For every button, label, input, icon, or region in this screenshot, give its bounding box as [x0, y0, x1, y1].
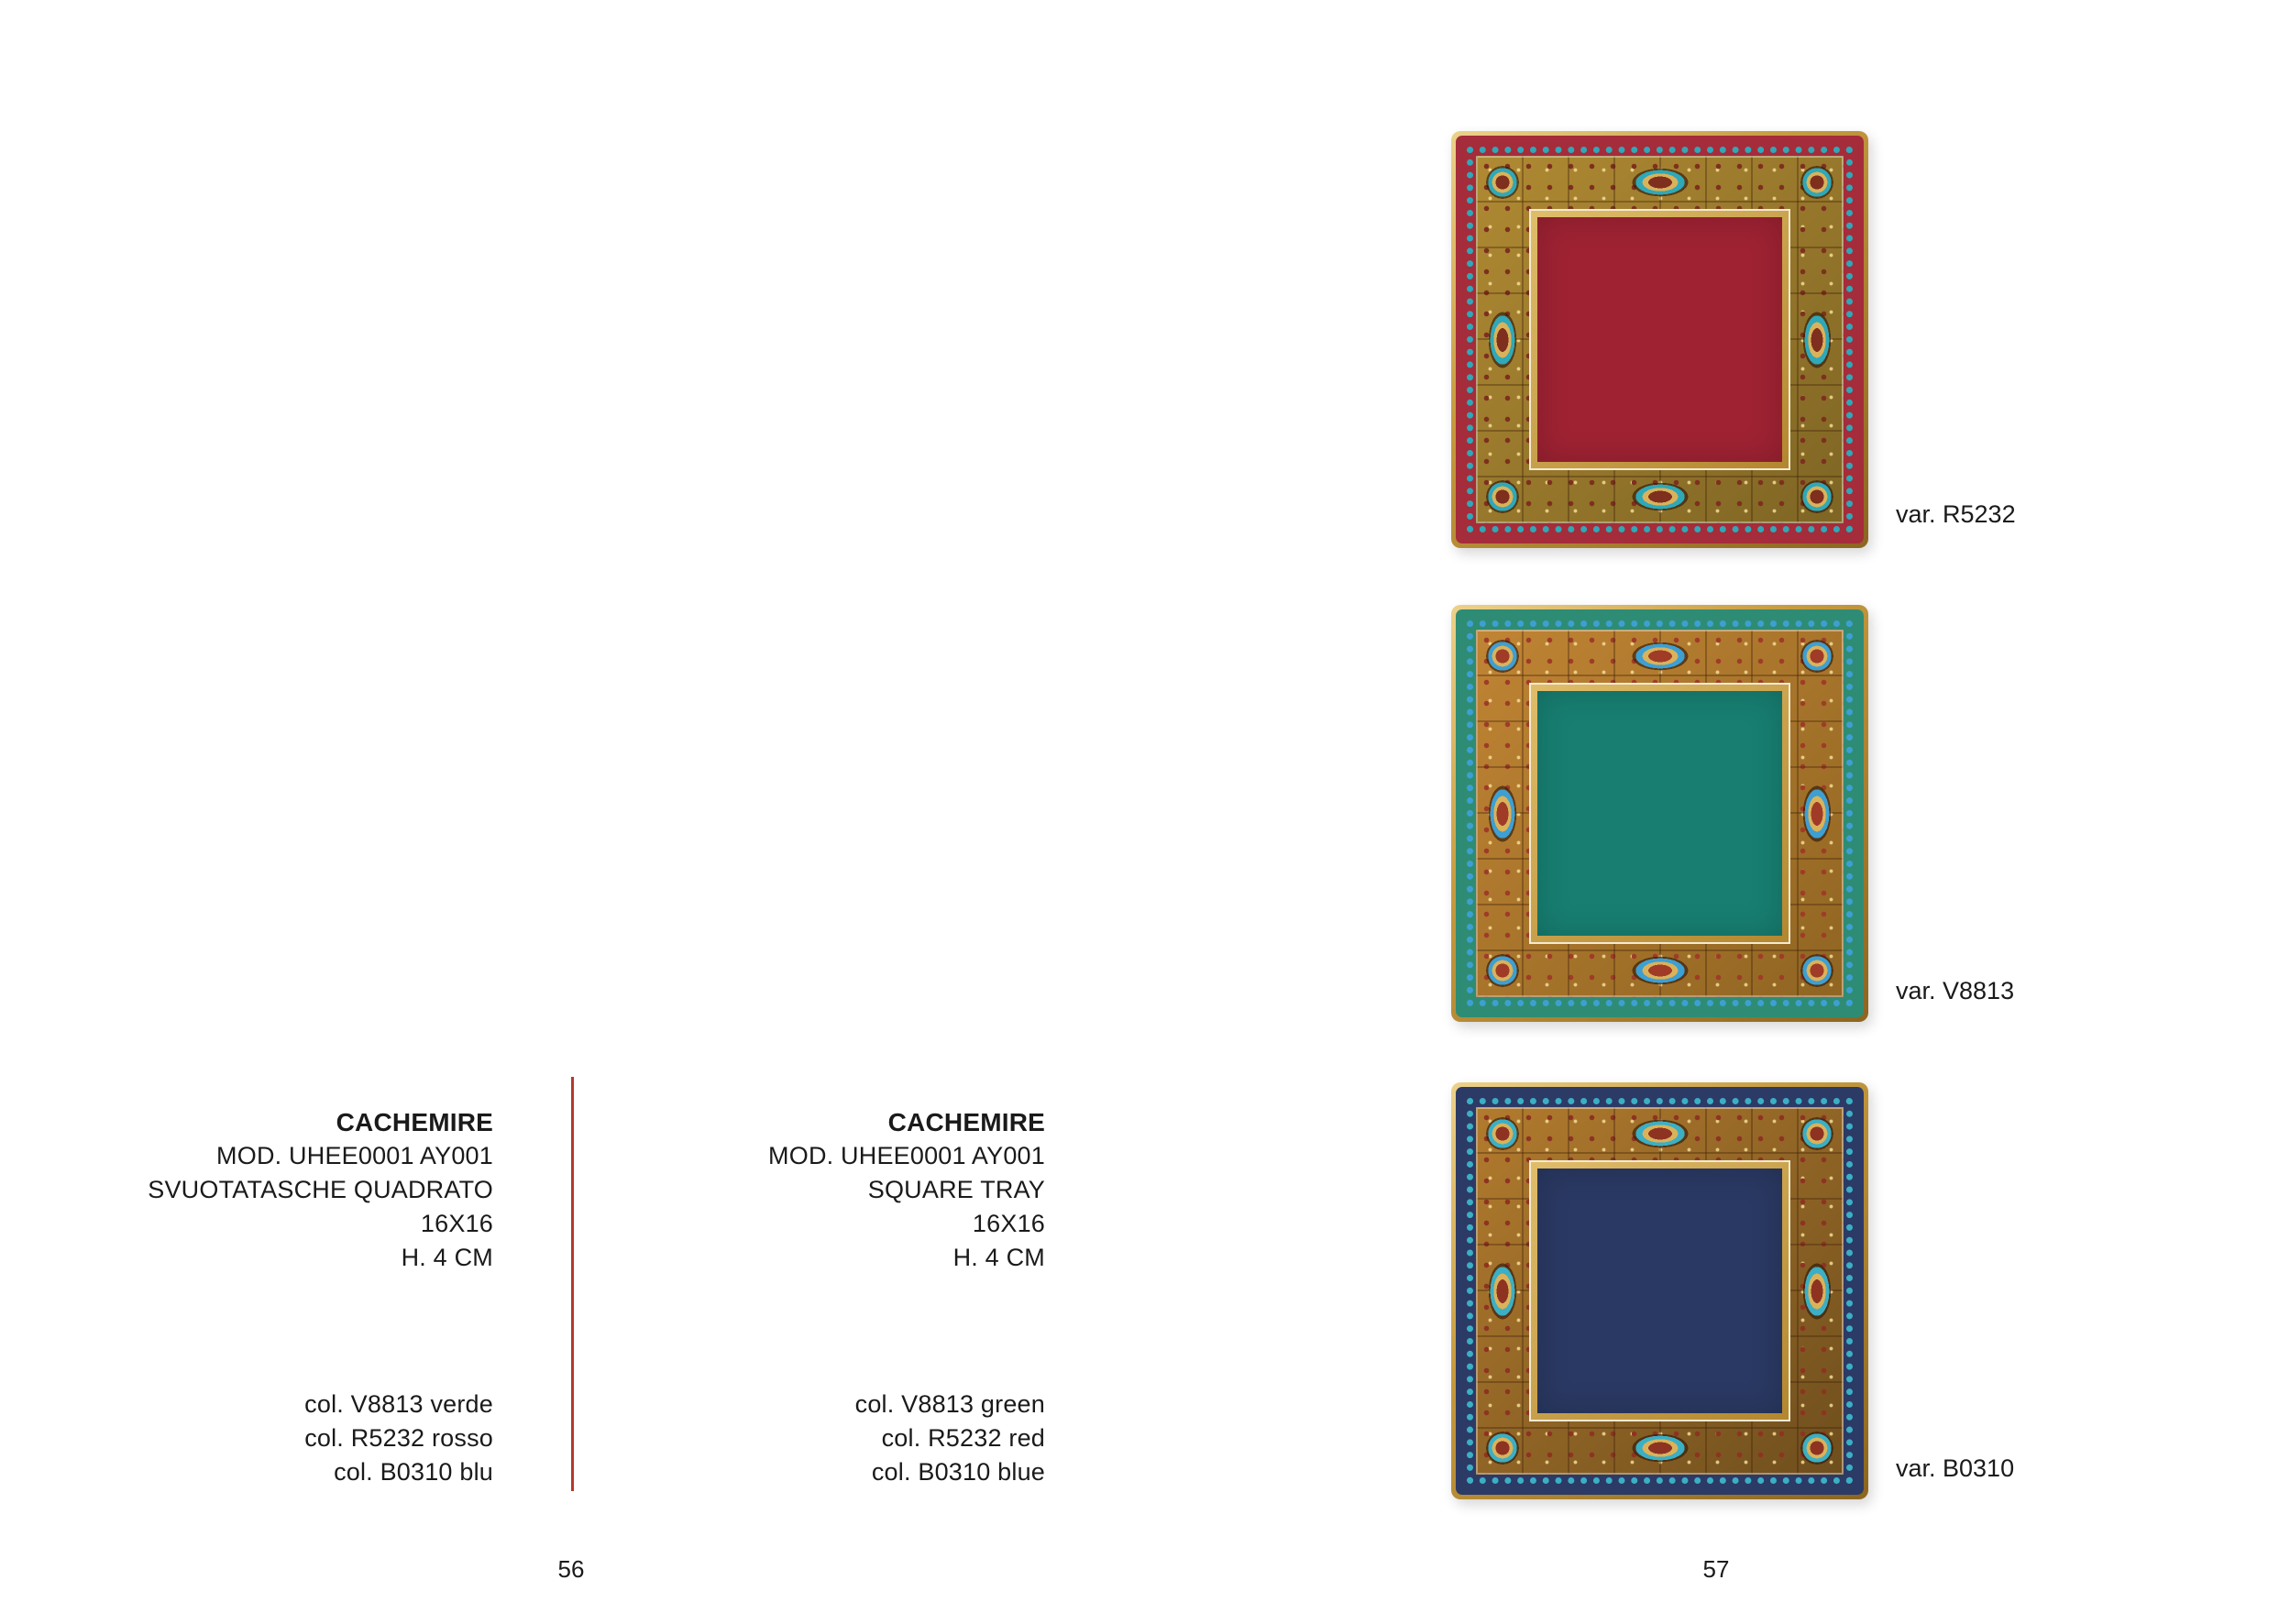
product-size-italian: 16X16: [128, 1207, 493, 1241]
product-model-english: MOD. UHEE0001 AY001: [680, 1139, 1045, 1173]
paisley-medallion: [1796, 298, 1838, 382]
product-spec-english: CACHEMIRE MOD. UHEE0001 AY001 SQUARE TRA…: [680, 1105, 1045, 1275]
color-option-rosso: col. R5232 rosso: [128, 1421, 493, 1455]
tray-photo-red: [1451, 131, 1868, 548]
tray-gold-frame: [1529, 209, 1790, 470]
tray-outer-band: [1456, 1087, 1864, 1495]
color-option-blu: col. B0310 blu: [128, 1455, 493, 1489]
paisley-medallion: [1792, 631, 1842, 681]
paisley-medallion: [1478, 946, 1527, 995]
product-height-italian: H. 4 CM: [128, 1241, 493, 1275]
tray-photo-blue: [1451, 1082, 1868, 1499]
product-model-italian: MOD. UHEE0001 AY001: [128, 1139, 493, 1173]
paisley-medallion: [1618, 161, 1702, 203]
tray-center-field: [1537, 217, 1782, 462]
paisley-medallion: [1792, 1423, 1842, 1473]
paisley-medallion: [1618, 635, 1702, 677]
product-size-english: 16X16: [680, 1207, 1045, 1241]
catalog-page: CACHEMIRE MOD. UHEE0001 AY001 SVUOTATASC…: [0, 0, 2290, 1624]
tray-gold-frame: [1529, 683, 1790, 944]
paisley-medallion: [1478, 472, 1527, 521]
product-description-italian: SVUOTATASCHE QUADRATO: [128, 1173, 493, 1207]
paisley-medallion: [1618, 949, 1702, 992]
tray-dotted-trim: [1467, 147, 1853, 532]
paisley-medallion: [1796, 1249, 1838, 1333]
tray-photo-green: [1451, 605, 1868, 1022]
tray-paisley-border: [1476, 156, 1844, 523]
product-colors-english: col. V8813 green col. R5232 red col. B03…: [680, 1388, 1045, 1489]
tray-outer-band: [1456, 136, 1864, 543]
tray-outer-band: [1456, 609, 1864, 1017]
paisley-medallion: [1481, 298, 1524, 382]
tray-paisley-border: [1476, 630, 1844, 997]
variant-label-r5232: var. R5232: [1896, 500, 2152, 528]
product-spec-italian: CACHEMIRE MOD. UHEE0001 AY001 SVUOTATASC…: [128, 1105, 493, 1275]
paisley-medallion: [1792, 1109, 1842, 1158]
paisley-medallion: [1478, 631, 1527, 681]
page-number-right: 57: [1670, 1555, 1762, 1583]
product-height-english: H. 4 CM: [680, 1241, 1045, 1275]
paisley-medallion: [1792, 158, 1842, 207]
column-divider-line: [571, 1077, 574, 1491]
paisley-medallion: [1618, 1427, 1702, 1469]
page-number-left: 56: [525, 1555, 617, 1583]
product-title-italian: CACHEMIRE: [128, 1105, 493, 1139]
tray-gold-frame: [1529, 1160, 1790, 1421]
tray-dotted-trim: [1467, 620, 1853, 1006]
product-title-english: CACHEMIRE: [680, 1105, 1045, 1139]
product-description-english: SQUARE TRAY: [680, 1173, 1045, 1207]
tray-center-field: [1537, 1169, 1782, 1413]
product-colors-italian: col. V8813 verde col. R5232 rosso col. B…: [128, 1388, 493, 1489]
color-option-green: col. V8813 green: [680, 1388, 1045, 1421]
color-option-red: col. R5232 red: [680, 1421, 1045, 1455]
paisley-medallion: [1478, 1423, 1527, 1473]
paisley-medallion: [1478, 158, 1527, 207]
color-option-verde: col. V8813 verde: [128, 1388, 493, 1421]
tray-paisley-border: [1476, 1107, 1844, 1475]
tray-dotted-trim: [1467, 1098, 1853, 1484]
paisley-medallion: [1478, 1109, 1527, 1158]
color-option-blue: col. B0310 blue: [680, 1455, 1045, 1489]
variant-label-v8813: var. V8813: [1896, 977, 2152, 1004]
paisley-medallion: [1796, 772, 1838, 856]
paisley-medallion: [1792, 472, 1842, 521]
tray-center-field: [1537, 691, 1782, 936]
variant-label-b0310: var. B0310: [1896, 1454, 2152, 1482]
paisley-medallion: [1481, 1249, 1524, 1333]
paisley-medallion: [1481, 772, 1524, 856]
paisley-medallion: [1618, 476, 1702, 518]
paisley-medallion: [1792, 946, 1842, 995]
paisley-medallion: [1618, 1113, 1702, 1155]
